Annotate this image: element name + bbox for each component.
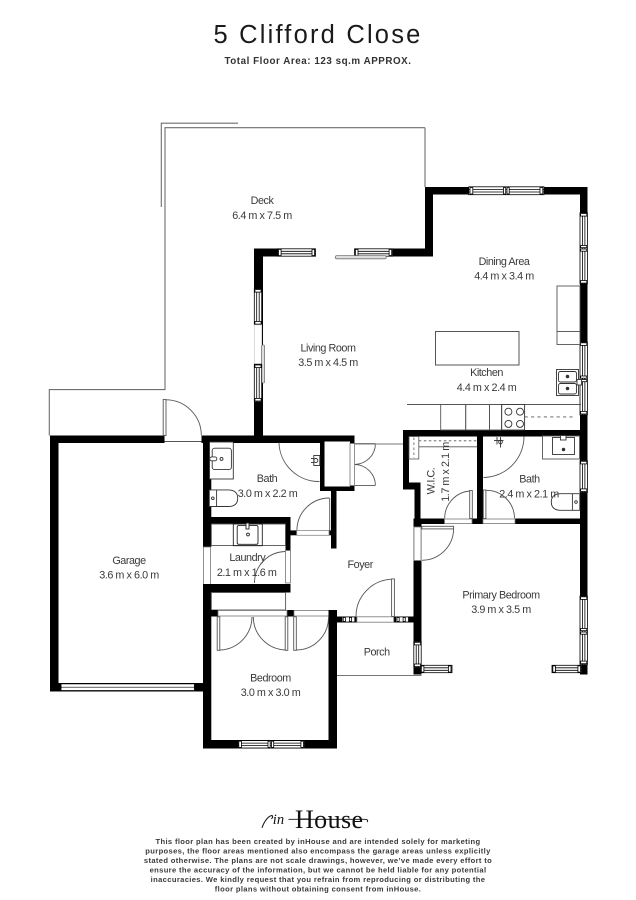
svg-text:Garage: Garage bbox=[112, 555, 146, 567]
svg-text:inaccuracies. We kindly reques: inaccuracies. We kindly request that you… bbox=[151, 875, 486, 884]
svg-text:3.9 m x 3.5 m: 3.9 m x 3.5 m bbox=[471, 604, 531, 616]
svg-text:3.0 m x 3.0 m: 3.0 m x 3.0 m bbox=[241, 687, 301, 699]
svg-text:Bedroom: Bedroom bbox=[250, 673, 291, 685]
svg-text:in: in bbox=[273, 812, 284, 828]
svg-text:Laundry: Laundry bbox=[229, 552, 266, 564]
svg-text:Primary Bedroom: Primary Bedroom bbox=[462, 590, 540, 602]
svg-text:4.4 m x 2.4 m: 4.4 m x 2.4 m bbox=[457, 382, 517, 394]
svg-text:Foyer: Foyer bbox=[348, 559, 374, 571]
svg-text:Dining Area: Dining Area bbox=[479, 256, 530, 268]
svg-text:Bath: Bath bbox=[519, 474, 540, 486]
svg-text:4.4 m x 3.4 m: 4.4 m x 3.4 m bbox=[474, 271, 534, 283]
svg-text:3.6 m x 6.0 m: 3.6 m x 6.0 m bbox=[99, 570, 159, 582]
svg-text:3.5 m x 4.5 m: 3.5 m x 4.5 m bbox=[298, 357, 358, 369]
svg-text:1.7 m x 2.1 m: 1.7 m x 2.1 m bbox=[440, 442, 452, 502]
svg-text:Porch: Porch bbox=[364, 647, 390, 659]
svg-text:ensure the accuracy of the inf: ensure the accuracy of the information, … bbox=[150, 866, 487, 875]
svg-text:Bath: Bath bbox=[257, 473, 278, 485]
svg-text:stated otherwise. The plans ar: stated otherwise. The plans are not scal… bbox=[144, 856, 492, 865]
svg-text:purposes, the floor areas ment: purposes, the floor areas mentioned also… bbox=[145, 847, 491, 856]
svg-text:6.4 m x 7.5 m: 6.4 m x 7.5 m bbox=[232, 210, 292, 222]
svg-text:2.1 m x 1.6 m: 2.1 m x 1.6 m bbox=[217, 567, 277, 579]
svg-text:floor plans without obtaining: floor plans without obtaining consent fr… bbox=[215, 885, 421, 894]
svg-text:This floor plan has been creat: This floor plan has been created by inHo… bbox=[156, 837, 481, 846]
svg-text:5 Clifford Close: 5 Clifford Close bbox=[213, 21, 422, 49]
svg-text:Kitchen: Kitchen bbox=[470, 367, 503, 379]
svg-text:Living Room: Living Room bbox=[300, 343, 356, 355]
svg-text:Deck: Deck bbox=[251, 195, 275, 207]
svg-text:House: House bbox=[295, 805, 363, 834]
svg-text:2.4 m x 2.1 m: 2.4 m x 2.1 m bbox=[499, 489, 559, 501]
svg-text:Total Floor Area: 123 sq.m APP: Total Floor Area: 123 sq.m APPROX. bbox=[224, 56, 411, 67]
svg-text:3.0 m x 2.2 m: 3.0 m x 2.2 m bbox=[238, 488, 298, 500]
svg-text:W.I.C.: W.I.C. bbox=[426, 467, 438, 494]
